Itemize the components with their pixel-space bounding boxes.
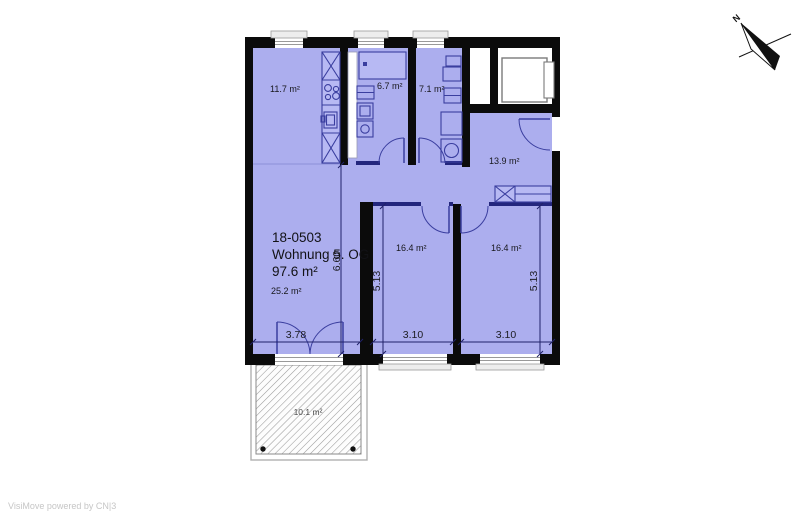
kitchen-area-label: 11.7 m² (270, 84, 300, 94)
window-bedroom-left (379, 354, 451, 370)
kitchen-bath-wall (340, 48, 348, 165)
balcony-area-label: 10.1 m² (294, 407, 323, 417)
window-kitchen (271, 31, 307, 48)
window-bedroom-right (476, 354, 544, 370)
dim-living-width: 3.78 (286, 329, 307, 341)
unit-total-area: 97.6 m² (272, 264, 318, 279)
bathroom-large-area-label: 7.1 m² (419, 84, 445, 94)
floorplan-canvas: 10.1 m² (0, 0, 800, 520)
north-compass-icon: N (731, 12, 791, 70)
watermark-text: VisiMove powered by CN|3 (8, 501, 116, 511)
hallway-area-label: 13.9 m² (489, 156, 520, 166)
window-bath-small (354, 31, 388, 48)
balcony-post-left (260, 446, 265, 451)
dim-bedroom-right-width: 3.10 (496, 329, 517, 341)
elevator-icon (502, 58, 554, 102)
shaft-wall (490, 48, 498, 106)
living-area-label: 25.2 m² (271, 286, 302, 296)
bedroom-right-area-label: 16.4 m² (491, 243, 522, 253)
entry-door-opening (552, 117, 560, 151)
dim-bedroom-right-depth: 5.13 (528, 271, 540, 292)
bedroom-left-area-label: 16.4 m² (396, 243, 427, 253)
window-bath-large (413, 31, 448, 48)
wardrobe-icon (495, 186, 551, 202)
dim-bedroom-left-depth: 5.13 (371, 271, 383, 292)
north-label: N (731, 12, 742, 24)
pocket-door (348, 52, 357, 158)
elevator-bottom-wall (470, 104, 552, 113)
bath-divider-wall (408, 48, 416, 165)
balcony-terrace: 10.1 m² (251, 363, 367, 460)
dim-bedroom-left-width: 3.10 (403, 329, 424, 341)
floorplan-drawing: 10.1 m² (0, 0, 800, 520)
inter-bedroom-wall (453, 204, 461, 354)
unit-id: 18-0503 (272, 230, 322, 245)
bathroom-small-area-label: 6.7 m² (377, 81, 403, 91)
bath-hall-wall (462, 48, 470, 167)
balcony-post-right (350, 446, 355, 451)
unit-name: Wohnung 5. OG (272, 247, 369, 262)
balcony-door-opening (275, 354, 343, 365)
kitchen-counter (321, 52, 340, 163)
